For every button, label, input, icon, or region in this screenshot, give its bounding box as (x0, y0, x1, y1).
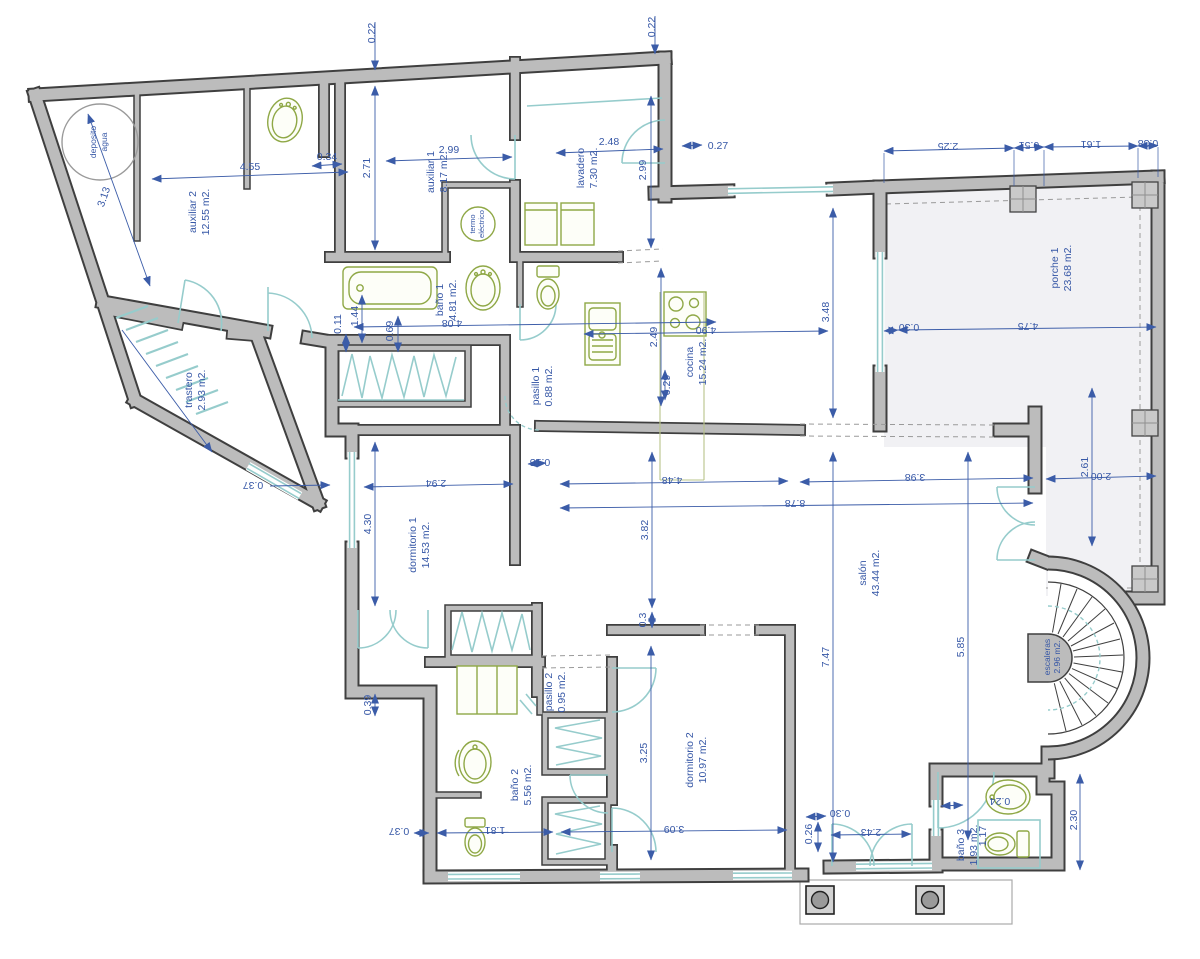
wardrobe-fixture (457, 666, 536, 714)
dim-label: 0.24 (990, 795, 1011, 807)
svg-text:pasillo 1: pasillo 1 (530, 367, 542, 406)
dim-label: 0.37 (243, 479, 264, 491)
dim-label: 3.13 (95, 185, 113, 208)
porch-column (806, 886, 834, 914)
room-label-escaleras: escaleras 2.96 m2. (1042, 639, 1062, 675)
room-label-termo: termo eléctrico (468, 210, 486, 238)
svg-text:pasillo 2: pasillo 2 (543, 673, 555, 712)
svg-text:8.17 m2.: 8.17 m2. (438, 152, 450, 193)
dim-label: 2.94 (426, 477, 447, 489)
dim-label: 4.55 (240, 161, 261, 173)
svg-text:salón: salón (857, 560, 869, 585)
dim-label: 0.26 (803, 824, 815, 845)
svg-text:baño 1: baño 1 (434, 284, 446, 316)
washer-fixture (525, 203, 594, 245)
window (728, 187, 833, 194)
door-arc (520, 304, 556, 340)
svg-text:2.93 m2.: 2.93 m2. (196, 370, 208, 411)
dim-label: 0.27 (708, 140, 729, 152)
svg-text:5.56 m2.: 5.56 m2. (522, 765, 534, 806)
dim-label: 0.39 (362, 695, 374, 716)
svg-text:4.81 m2.: 4.81 m2. (447, 280, 459, 321)
dim-label: 3.48 (820, 302, 832, 323)
svg-text:baño 2: baño 2 (509, 769, 521, 801)
dim-label: 4.90 (696, 324, 717, 336)
svg-text:23.68 m2.: 23.68 m2. (1062, 245, 1074, 292)
svg-text:43.44 m2.: 43.44 m2. (870, 550, 882, 597)
svg-text:14.53 m2.: 14.53 m2. (420, 522, 432, 569)
dim-label: 3.25 (638, 743, 650, 764)
room-label-pasillo1: pasillo 1 0.88 m2. (530, 366, 555, 407)
room-label-lavadero: lavadero 7.30 m2. (575, 148, 600, 189)
dim-label: 1.61 (1081, 138, 1102, 150)
svg-text:10.97 m2.: 10.97 m2. (697, 737, 709, 784)
dim-label: 0.51 (1019, 139, 1040, 151)
toilet-fixture (537, 266, 559, 309)
dim-label: 4.48 (662, 474, 683, 486)
sink-fixture (466, 266, 500, 310)
bidet-fixture (465, 818, 485, 856)
dim-label: 1.44 (349, 306, 361, 327)
svg-text:1.93 m2.: 1.93 m2. (968, 825, 980, 866)
dim-label: 4.75 (1018, 320, 1039, 332)
dim-label: 0.38 (1138, 137, 1159, 149)
entry-steps (800, 880, 1012, 924)
svg-text:eléctrico: eléctrico (477, 210, 486, 238)
svg-text:cocina: cocina (684, 347, 696, 378)
room-label-bano1: baño 1 4.81 m2. (434, 280, 459, 321)
floor-plan: 0.22 0.22 4.55 0.34 2.71 2.99 2.48 2.99 … (0, 0, 1200, 959)
room-label-dormitorio2: dormitorio 2 10.97 m2. (684, 732, 709, 788)
dim-label: 7.47 (820, 647, 832, 668)
dim-label: 2.25 (938, 140, 959, 152)
room-label-dormitorio1: dormitorio 1 14.53 m2. (407, 517, 432, 573)
svg-text:baño 3: baño 3 (955, 829, 967, 861)
svg-text:agua: agua (99, 132, 109, 151)
bathtub-fixture (343, 267, 437, 309)
svg-text:auxiliar 2: auxiliar 2 (187, 191, 199, 233)
room-label-pasillo2: pasillo 2 0.95 m2. (543, 672, 568, 713)
room-label-cocina: cocina 15.24 m2. (684, 339, 709, 386)
dim-label: 0.22 (366, 23, 378, 44)
door-arc (612, 808, 656, 852)
pedestal-sink-fixture (455, 741, 491, 783)
svg-text:termo: termo (468, 214, 477, 233)
dim-label: 0.30 (830, 807, 851, 819)
dim-label: 2.48 (599, 136, 620, 148)
svg-text:escaleras: escaleras (1042, 639, 1052, 675)
dim-label: 3.09 (664, 823, 685, 835)
floor-plan-svg: 0.22 0.22 4.55 0.34 2.71 2.99 2.48 2.99 … (0, 0, 1200, 959)
svg-text:auxiliar 1: auxiliar 1 (425, 151, 437, 193)
hanger-hatch (452, 612, 530, 652)
svg-text:7.30 m2.: 7.30 m2. (588, 148, 600, 189)
window (448, 874, 520, 879)
porch-column (916, 886, 944, 914)
svg-text:deposito: deposito (88, 126, 98, 158)
room-label-bano2: baño 2 5.56 m2. (509, 765, 534, 806)
dim-label: 0.11 (332, 314, 344, 334)
dim-label: 3.98 (905, 471, 926, 483)
dim-label: 2.00 (1091, 470, 1112, 482)
hanger-hatch (555, 720, 602, 765)
sink-fixture (264, 95, 306, 145)
room-label-auxiliar1: auxiliar 1 8.17 m2. (425, 151, 450, 193)
dim-label: 4.30 (362, 514, 374, 535)
dim-label: 0.3 (637, 613, 649, 628)
dim-label: 0.30 (899, 321, 920, 333)
svg-text:12.55 m2.: 12.55 m2. (200, 189, 212, 236)
dim-label: 2.61 (1079, 457, 1091, 478)
dim-label: 0.29 (661, 375, 673, 396)
window (878, 252, 883, 372)
room-label-deposito: deposito agua (88, 126, 109, 158)
hanger-hatch (342, 354, 456, 398)
room-label-auxiliar2: auxiliar 2 12.55 m2. (187, 189, 212, 236)
dim-label: 1.81 (485, 824, 506, 836)
shelf-line (527, 98, 662, 106)
dim-label: 0.22 (646, 17, 658, 38)
double-door (997, 487, 1035, 560)
svg-text:porche 1: porche 1 (1049, 247, 1061, 288)
porch-area (884, 182, 1156, 596)
window (733, 873, 792, 878)
dim-label: 2.99 (637, 160, 649, 181)
dim-label: 5.85 (955, 637, 967, 658)
dim-label: 0.15 (530, 456, 551, 468)
dim-label: 8.78 (785, 497, 806, 509)
svg-text:lavadero: lavadero (575, 148, 587, 188)
room-label-salon: salón 43.44 m2. (857, 550, 882, 597)
svg-text:15.24 m2.: 15.24 m2. (697, 339, 709, 386)
svg-text:dormitorio 1: dormitorio 1 (407, 517, 419, 573)
dim-label: 0.34 (317, 151, 338, 163)
dim-label: 2.49 (648, 327, 660, 348)
hanger-hatch (555, 806, 602, 854)
svg-text:2.96 m2.: 2.96 m2. (1052, 640, 1062, 673)
room-label-trastero: trastero 2.93 m2. (183, 370, 208, 411)
svg-text:0.88 m2.: 0.88 m2. (543, 366, 555, 407)
dim-label: 2.30 (1068, 810, 1080, 831)
window (856, 863, 932, 868)
dim-label: 2.43 (861, 826, 882, 838)
svg-text:trastero: trastero (183, 372, 195, 408)
dim-label: 2.71 (361, 158, 373, 179)
window (350, 452, 355, 548)
dim-label: 0.69 (384, 321, 396, 342)
svg-text:0.95 m2.: 0.95 m2. (556, 672, 568, 713)
room-label-porche1: porche 1 23.68 m2. (1049, 245, 1074, 292)
dim-label: 0.37 (389, 825, 410, 837)
window (600, 874, 640, 879)
double-door (358, 610, 428, 648)
svg-text:dormitorio 2: dormitorio 2 (684, 732, 696, 788)
room-label-bano3: baño 3 1.93 m2. (955, 825, 980, 866)
door-arc (612, 668, 656, 712)
dim-label: 3.82 (639, 520, 651, 541)
